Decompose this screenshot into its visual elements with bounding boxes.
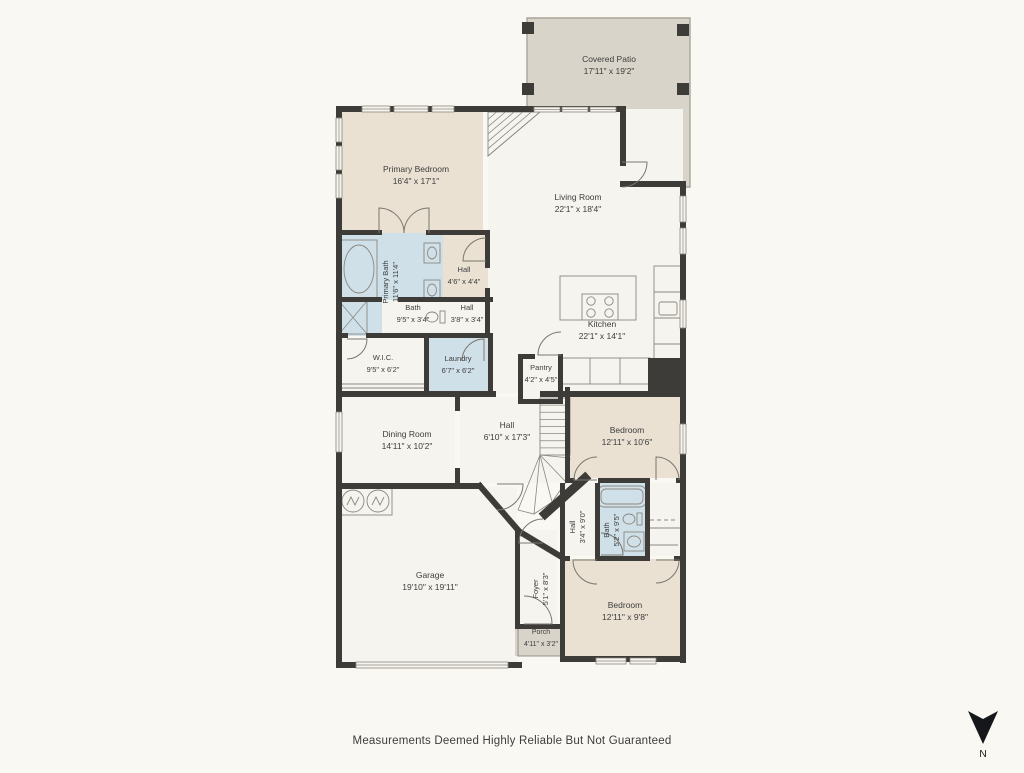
wall-segment bbox=[560, 556, 565, 661]
wall-segment bbox=[455, 468, 460, 484]
wall-segment bbox=[336, 483, 482, 489]
wall-segment bbox=[336, 230, 382, 235]
wall-segment bbox=[424, 338, 429, 395]
floor-plan-svg: Covered Patio17'11" x 19'2"Primary Bedro… bbox=[0, 0, 1024, 768]
wall-segment bbox=[455, 397, 460, 411]
wall-segment bbox=[597, 556, 647, 561]
room-bath-bottom bbox=[600, 483, 645, 556]
floor-plan-page: Covered Patio17'11" x 19'2"Primary Bedro… bbox=[0, 0, 1024, 768]
wall-segment bbox=[398, 297, 493, 302]
disclaimer-text: Measurements Deemed Highly Reliable But … bbox=[0, 735, 1024, 747]
wall-segment bbox=[515, 530, 520, 626]
wall-segment bbox=[366, 333, 493, 338]
patio-post bbox=[677, 24, 689, 36]
wall-segment bbox=[336, 333, 348, 338]
room-laundry bbox=[429, 338, 488, 391]
wall-segment bbox=[426, 230, 490, 235]
wall-segment bbox=[598, 478, 650, 483]
wall-segment bbox=[676, 478, 686, 483]
wall-segment bbox=[485, 230, 490, 268]
wall-segment bbox=[523, 354, 535, 359]
patio-post bbox=[522, 83, 534, 95]
wall-segment bbox=[595, 483, 600, 561]
wall-segment bbox=[488, 338, 493, 395]
wall-segment bbox=[620, 106, 626, 166]
room-dining-room bbox=[341, 397, 455, 483]
wall-segment bbox=[518, 399, 563, 404]
wall-segment bbox=[518, 354, 523, 404]
wall-segment bbox=[485, 288, 490, 338]
wall-segment bbox=[336, 297, 382, 302]
wall-segment bbox=[648, 358, 686, 394]
patio-post bbox=[677, 83, 689, 95]
wall-segment bbox=[336, 391, 496, 397]
wall-segment bbox=[645, 483, 650, 561]
wall-segment bbox=[565, 387, 570, 483]
north-label: N bbox=[979, 748, 987, 760]
fixture-counter bbox=[560, 276, 636, 320]
room-label-primary-bath: Primary Bath11'6" x 11'4" bbox=[381, 260, 400, 303]
patio-post bbox=[522, 22, 534, 34]
